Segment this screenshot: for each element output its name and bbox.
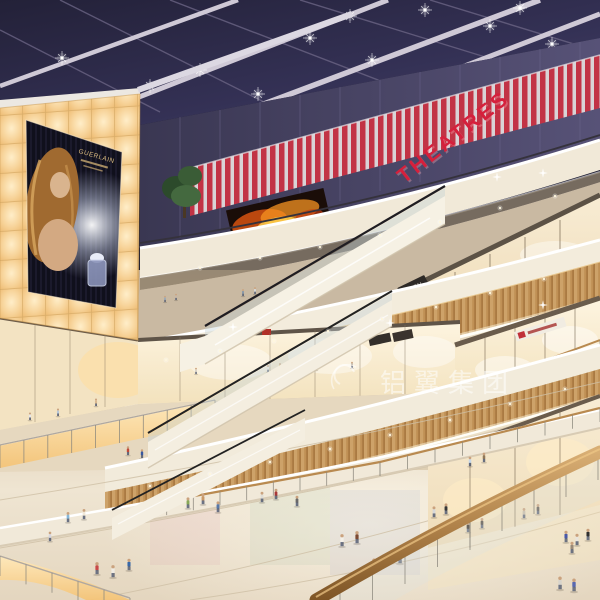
downlight (387, 432, 392, 437)
downlight (257, 255, 262, 260)
downlight (377, 232, 382, 237)
downlight (271, 338, 276, 343)
downlight (541, 276, 546, 281)
downlight (437, 219, 442, 224)
downlight (267, 459, 272, 464)
downlight (207, 471, 212, 476)
downlight (433, 304, 438, 309)
downlight (507, 401, 512, 406)
downlight (317, 244, 322, 249)
downlight (497, 205, 502, 210)
downlight (379, 316, 384, 321)
downlight (325, 328, 330, 333)
perfume-bottle (88, 253, 106, 286)
downlight (447, 417, 452, 422)
mall-atrium-rendering: THEATRES THEATRES TAI TAI (0, 0, 600, 600)
billboard-wall: GUERLAIN (0, 94, 147, 340)
downlight (562, 386, 567, 391)
downlight (147, 483, 152, 488)
downlight (552, 193, 557, 198)
downlight (197, 265, 202, 270)
downlight (217, 348, 222, 353)
atrium-scene-svg: THEATRES THEATRES TAI TAI (0, 0, 600, 600)
downlight (327, 446, 332, 451)
downlight (163, 357, 168, 362)
downlight (487, 290, 492, 295)
watermark-text: 铝翼集团 (380, 369, 516, 399)
